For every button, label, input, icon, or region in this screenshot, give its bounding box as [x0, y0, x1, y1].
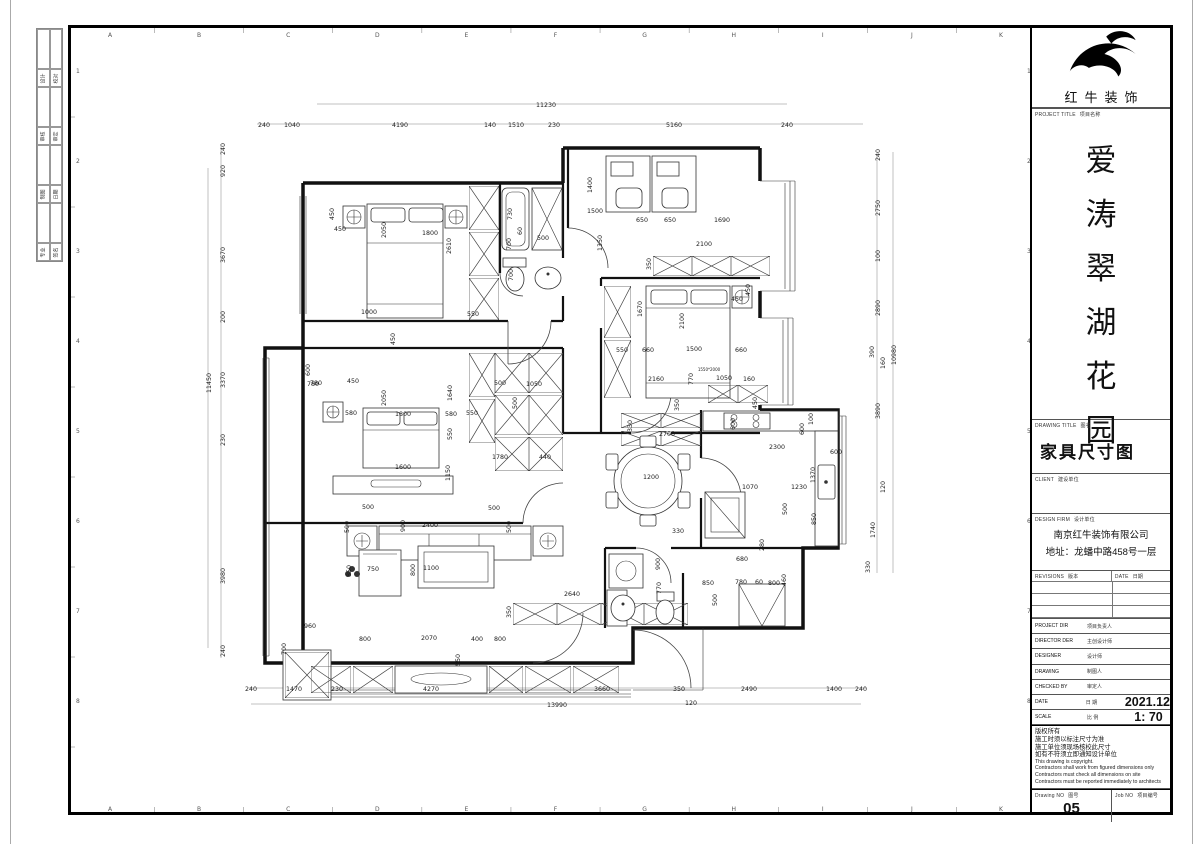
dim-label: 700 — [508, 269, 515, 281]
grid-letter: I — [822, 32, 824, 39]
dim-label: 1100 — [423, 565, 439, 572]
dim-label: 850 — [702, 580, 714, 587]
dim-label: 2610 — [446, 238, 453, 254]
dim-label: 330 — [865, 561, 872, 573]
grid-letter: I — [822, 806, 824, 812]
grid-letter: D — [375, 806, 380, 812]
dim-label: 700 — [506, 238, 513, 250]
revision-date-label: DATE日期 — [1112, 571, 1170, 581]
note-line: Contractors shall work from figured dime… — [1035, 765, 1167, 772]
dim-label: 650 — [636, 217, 648, 224]
grid-letter: F — [554, 32, 558, 39]
dim-label: 400 — [471, 636, 483, 643]
dim-label: 1370 — [810, 467, 817, 483]
cad-drawing-page: { "titleblock": { "logo_text": "红牛装饰", "… — [0, 0, 1200, 844]
grid-letter: C — [286, 32, 290, 39]
dim-label: 230 — [331, 686, 343, 693]
dim-label: 2890 — [875, 300, 882, 316]
dim-label: 3660 — [594, 686, 610, 693]
titleblock-row: DIRECTOR DER主创设计师 — [1032, 634, 1170, 649]
dim-label: 960 — [304, 623, 316, 630]
study-cabinets — [653, 256, 770, 276]
dim-label: 1500 — [587, 208, 603, 215]
drawing-number-row: Drawing NO图号 05 Job NO项目编号 — [1032, 789, 1170, 822]
dim-label: 800 — [494, 636, 506, 643]
grid-number: 6 — [76, 518, 80, 525]
design-firm-name: 南京红牛装饰有限公司 — [1032, 527, 1170, 541]
dim-label: 750 — [367, 566, 379, 573]
dim-label: 200 — [220, 311, 227, 323]
titleblock-row: DESIGNER设计师 — [1032, 649, 1170, 664]
grid-letter: H — [731, 806, 736, 812]
grid-number: 8 — [76, 698, 80, 705]
dim-label: 1050 — [526, 381, 542, 388]
grid-letter: E — [465, 32, 469, 39]
titleblock-row: PROJECT DIR项目负责人 — [1032, 619, 1170, 634]
dim-label: 800 — [359, 636, 371, 643]
dim-label: 1200 — [643, 474, 659, 481]
signature-cell — [37, 87, 50, 127]
dim-label: 1800 — [395, 411, 411, 418]
dim-label: 450 — [752, 397, 759, 409]
dim-label: 160 — [743, 376, 755, 383]
dim-label: 550 — [447, 428, 454, 440]
drawing-no-label: Drawing NO图号 — [1032, 790, 1111, 800]
dim-label: 2050 — [381, 390, 388, 406]
dining-area — [606, 413, 701, 526]
drawing-no-value: 05 — [1032, 800, 1111, 817]
dim-label: 140 — [484, 122, 496, 129]
signature-cell: 校对 — [50, 69, 63, 87]
titleblock-row: DRAWING制图人 — [1032, 665, 1170, 680]
dim-label: 730 — [507, 208, 514, 220]
master-bed — [343, 204, 467, 318]
master-wardrobe — [469, 186, 499, 320]
grid-letter: E — [465, 806, 469, 812]
dim-label: 660 — [735, 347, 747, 354]
dim-label: 350 — [673, 686, 685, 693]
project-name: 爱涛翠湖花园 — [1032, 119, 1170, 419]
titleblock-row: CHECKED BY审定人 — [1032, 680, 1170, 695]
grid-letter: G — [642, 806, 647, 812]
dim-label: 550 — [467, 311, 479, 318]
dim-label: 11230 — [536, 102, 556, 109]
dim-label: 1670 — [637, 301, 644, 317]
dim-label: 390 — [869, 346, 876, 358]
dim-label: 1550*2000 — [698, 367, 721, 372]
dim-label: 500 — [512, 397, 519, 409]
dim-label: 2700 — [659, 431, 675, 438]
dim-label: 460 — [781, 574, 788, 586]
dim-label: 1640 — [447, 385, 454, 401]
dim-label: 600 — [830, 449, 842, 456]
grid-letter: K — [999, 32, 1004, 39]
dim-label: 1690 — [714, 217, 730, 224]
dim-label: 4190 — [392, 122, 408, 129]
dim-label: 450 — [347, 378, 359, 385]
grid-number: 4 — [76, 338, 80, 345]
dim-label: 580 — [345, 410, 357, 417]
dim-label: 1050 — [716, 375, 732, 382]
dim-label: 1470 — [286, 686, 302, 693]
dim-label: 500 — [712, 594, 719, 606]
signature-cell: 日期 — [50, 185, 63, 203]
signature-cell: 签名 — [50, 243, 63, 261]
dim-label: 1000 — [361, 309, 377, 316]
company-name: 红牛装饰 — [1032, 87, 1170, 106]
note-line: 版权所有 — [1035, 728, 1167, 736]
signature-cell: 审定 — [50, 127, 63, 145]
company-logo: 红牛装饰 — [1032, 28, 1170, 108]
signature-cell: 专业 — [37, 243, 50, 261]
dim-label: 240 — [855, 686, 867, 693]
dim-label: 2490 — [741, 686, 757, 693]
signature-cell: 审核 — [37, 127, 50, 145]
drawing-title: 家具尺寸图 — [1032, 430, 1170, 473]
dim-label: 2750 — [875, 200, 882, 216]
dim-label: 450 — [390, 333, 397, 345]
dim-label: 2100 — [696, 241, 712, 248]
dim-label: 700 — [281, 643, 288, 655]
dim-label: 900 — [400, 520, 407, 532]
dim-label: 120 — [880, 481, 887, 493]
project-name-char: 爱 — [1086, 135, 1117, 180]
dim-label: 1800 — [422, 230, 438, 237]
dim-label: 1230 — [791, 484, 807, 491]
grid-letter: B — [197, 32, 201, 39]
dim-label: 500 — [494, 380, 506, 387]
project-name-char: 涛 — [1086, 189, 1117, 234]
dim-label: 450 — [745, 284, 752, 296]
dim-label: 780 — [735, 579, 747, 586]
grid-number: 1 — [76, 68, 80, 75]
signature-cell: 制图 — [37, 185, 50, 203]
dim-label: 230 — [220, 434, 227, 446]
dim-label: 500 — [362, 504, 374, 511]
title-block: 红牛装饰 PROJECT TITLE项目名称 爱涛翠湖花园 DRAWING TI… — [1030, 28, 1170, 812]
dim-label: 550 — [455, 654, 462, 666]
dim-label: 280 — [759, 539, 766, 551]
dim-label: 330 — [672, 528, 684, 535]
dim-label: 500 — [782, 503, 789, 515]
dim-label: 2070 — [421, 635, 437, 642]
dim-label: 240 — [781, 122, 793, 129]
living-room — [345, 526, 563, 596]
dim-label: 330 — [627, 420, 634, 432]
dim-label: 770 — [656, 582, 663, 594]
dim-label: 2400 — [422, 522, 438, 529]
dim-label: 850 — [346, 565, 353, 577]
project-title-label: PROJECT TITLE项目名称 — [1032, 109, 1170, 119]
dim-label: 550 — [466, 410, 478, 417]
dim-label: 230 — [548, 122, 560, 129]
titleblock-row: DATE日 期2021.12 — [1032, 695, 1170, 710]
grid-number: 7 — [76, 608, 80, 615]
note-line: Contractors must be reported immediately… — [1035, 779, 1167, 786]
signature-cell — [50, 29, 63, 69]
design-firm-label: DESIGN FIRM设计单位 — [1032, 514, 1170, 524]
dim-label: 770 — [688, 373, 695, 385]
dim-label: 3670 — [220, 247, 227, 263]
signature-cell — [50, 145, 63, 185]
dim-label: 240 — [245, 686, 257, 693]
paper-edge-right — [1192, 0, 1193, 844]
project-name-char: 花 — [1086, 351, 1117, 396]
dim-label: 580 — [445, 411, 457, 418]
signature-cell — [50, 203, 63, 243]
dim-label: 1500 — [686, 346, 702, 353]
grid-number: 3 — [76, 248, 80, 255]
grid-letter: G — [642, 32, 647, 39]
dim-label: 2050 — [381, 222, 388, 238]
dim-label: 900 — [655, 558, 662, 570]
dim-label: 650 — [664, 217, 676, 224]
note-line: Contractors must check all dimensions on… — [1035, 772, 1167, 779]
dim-label: 550 — [616, 347, 628, 354]
drawing-title-label: DRAWING TITLE图名 — [1032, 420, 1170, 430]
dim-label: 500 — [344, 521, 351, 533]
dim-label: 3370 — [220, 372, 227, 388]
dim-label: 1740 — [870, 522, 877, 538]
bathroom2 — [607, 554, 785, 626]
titleblock-row: SCALE比 例1: 70 — [1032, 710, 1170, 725]
dim-label: 500 — [506, 521, 513, 533]
dim-label: 350 — [674, 399, 681, 411]
dim-label: 240 — [875, 149, 882, 161]
dim-label: 850 — [811, 513, 818, 525]
dim-label: 11450 — [206, 373, 213, 393]
dim-label: 2160 — [648, 376, 664, 383]
bull-logo-icon — [1053, 28, 1149, 80]
dim-label: 800 — [768, 580, 780, 587]
signature-cell: 设计 — [37, 69, 50, 87]
study-desks — [606, 156, 696, 212]
dim-label: 3980 — [220, 568, 227, 584]
dim-label: 2300 — [769, 444, 785, 451]
grid-letter: K — [999, 806, 1004, 812]
dim-label: 660 — [642, 347, 654, 354]
grid-letter: D — [375, 32, 380, 39]
dim-label: 60 — [517, 227, 524, 235]
note-line: 施工时须以标注尺寸为准 — [1035, 736, 1167, 744]
dim-label: 60 — [755, 579, 763, 586]
dim-label: 1400 — [826, 686, 842, 693]
dim-label: 600 — [799, 423, 806, 435]
dim-label: 450 — [731, 296, 743, 303]
dim-label: 100 — [875, 250, 882, 262]
drawing-frame: AABBCCDDEEFFGGHHIIJJKK1122334455667788 1… — [68, 25, 1173, 815]
project-name-char: 湖 — [1086, 297, 1117, 342]
signature-strip: 设计校对审核审定制图日期专业签名 — [36, 28, 63, 262]
grid-number: 5 — [76, 428, 80, 435]
dim-label: 440 — [539, 454, 551, 461]
dim-label: 2640 — [564, 591, 580, 598]
dim-label: 240 — [220, 143, 227, 155]
dim-label: 100 — [808, 413, 815, 425]
dim-label: 1400 — [587, 177, 594, 193]
dim-label: 5160 — [666, 122, 682, 129]
note-line: This drawing is copyright. — [1035, 759, 1167, 766]
signature-cell — [37, 203, 50, 243]
dim-label: 1150 — [445, 465, 452, 481]
dim-label: 4270 — [423, 686, 439, 693]
dim-label: 600 — [305, 364, 312, 376]
floor-plan: AABBCCDDEEFFGGHHIIJJKK1122334455667788 1… — [71, 28, 1036, 812]
dim-label: 3890 — [875, 403, 882, 419]
dim-label: 10980 — [891, 345, 898, 365]
bedroom2 — [323, 353, 563, 494]
grid-letter: J — [910, 32, 913, 39]
dim-label: 680 — [736, 556, 748, 563]
grid-number: 2 — [76, 158, 80, 165]
note-line: 如有不符须立即通知设计单位 — [1035, 751, 1167, 759]
grid-letter: H — [731, 32, 736, 39]
bedroom3 — [604, 286, 768, 403]
dim-label: 450 — [329, 208, 336, 220]
dim-label: 120 — [685, 700, 697, 707]
dim-label: 1510 — [508, 122, 524, 129]
grid-letter: A — [108, 32, 113, 39]
grid-letter: J — [910, 806, 913, 812]
dim-label: 1040 — [284, 122, 300, 129]
signature-cell — [37, 145, 50, 185]
design-firm-address: 地址：龙蟠中路458号一层 — [1032, 544, 1170, 558]
dim-label: 1070 — [742, 484, 758, 491]
dim-label: 1350 — [597, 235, 604, 251]
paper-edge-left — [10, 0, 11, 844]
client-label: CLIENT建设单位 — [1032, 474, 1170, 484]
dim-label: 350 — [506, 606, 513, 618]
note-line: 施工单位须现场核校此尺寸 — [1035, 744, 1167, 752]
person-rows: PROJECT DIR项目负责人DIRECTOR DER主创设计师DESIGNE… — [1032, 619, 1170, 725]
signature-cell — [37, 29, 50, 69]
dim-label: 240 — [258, 122, 270, 129]
dim-label: 920 — [220, 165, 227, 177]
grid-letter: B — [197, 806, 201, 812]
dim-label: 500 — [488, 505, 500, 512]
dim-label: 500 — [537, 235, 549, 242]
job-no-label: Job NO项目编号 — [1112, 790, 1170, 800]
dim-label: 160 — [880, 357, 887, 369]
dim-label: 600 — [730, 418, 737, 430]
grid-letter: A — [108, 806, 113, 812]
dim-label: 450 — [334, 226, 346, 233]
dim-label: 780 — [307, 381, 319, 388]
grid-letter: F — [554, 806, 558, 812]
dim-label: 1600 — [395, 464, 411, 471]
dim-label: 350 — [646, 258, 653, 270]
dim-label: 800 — [410, 564, 417, 576]
copyright-notes: 版权所有施工时须以标注尺寸为准施工单位须现场核校此尺寸如有不符须立即通知设计单位… — [1032, 725, 1170, 789]
dim-label: 13990 — [547, 702, 567, 709]
dim-label: 240 — [220, 645, 227, 657]
project-name-char: 翠 — [1086, 243, 1117, 288]
signature-cell — [50, 87, 63, 127]
grid-letter: C — [286, 806, 290, 812]
dim-label: 2100 — [679, 313, 686, 329]
dim-label: 1780 — [492, 454, 508, 461]
revisions-table: REVISIONS版本 DATE日期 — [1032, 571, 1170, 619]
revisions-label: REVISIONS版本 — [1032, 571, 1112, 581]
